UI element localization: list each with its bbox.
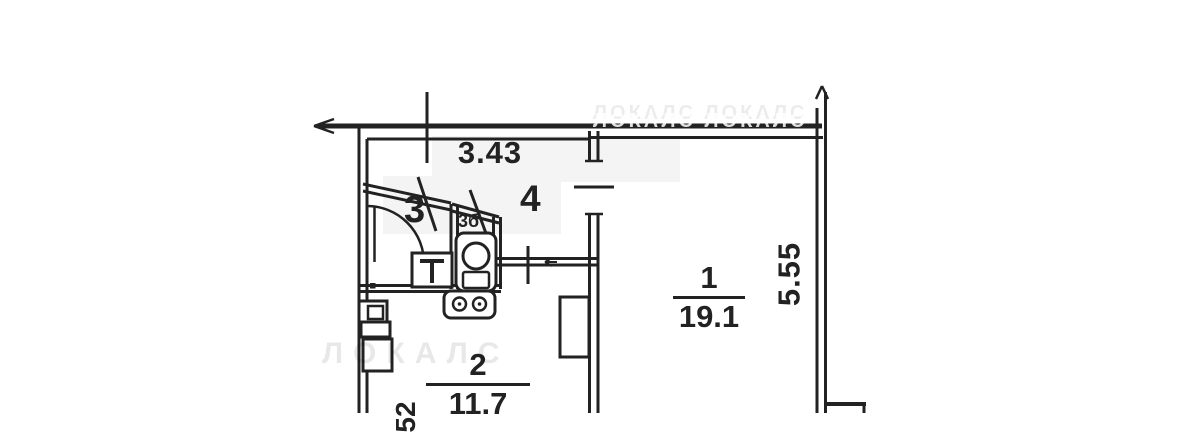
room-3-label: 3 bbox=[404, 191, 425, 229]
room-1-area: 19.1 bbox=[659, 301, 759, 332]
stove-icon bbox=[444, 291, 495, 318]
room-4-label: 4 bbox=[520, 180, 541, 217]
room-1-number: 1 bbox=[659, 262, 759, 293]
dimension-bottom-left: 52 bbox=[392, 401, 420, 432]
washbasin-icon bbox=[412, 253, 452, 287]
room-1-label: 1 19.1 bbox=[659, 262, 759, 332]
up-arrow-icon bbox=[816, 86, 828, 99]
kitchen-partition-wall bbox=[497, 246, 598, 284]
kitchen-counter-icon bbox=[361, 322, 390, 337]
floor-plan: 3.43 5.55 52 3 3б 4 1 19.1 2 11.7 ЛОКАЛС… bbox=[0, 0, 1200, 413]
room-2-area: 11.7 bbox=[426, 388, 530, 419]
wardrobe-icon bbox=[560, 297, 589, 357]
watermark-kitchen: ЛОКАЛС bbox=[322, 337, 509, 371]
toilet-icon bbox=[456, 233, 496, 291]
dimension-top-width: 3.43 bbox=[430, 137, 550, 168]
watermark-top: ЛОКАЛС ЛОКАЛС bbox=[593, 110, 807, 133]
kitchen-sink-icon bbox=[359, 301, 387, 323]
floorplan-page: { "colors": { "ink": "#222222", "paper":… bbox=[0, 0, 1200, 413]
room-3b-label: 3б bbox=[458, 212, 479, 230]
floor-plan-drawing bbox=[0, 0, 1200, 413]
dimension-right-height: 5.55 bbox=[774, 242, 805, 306]
